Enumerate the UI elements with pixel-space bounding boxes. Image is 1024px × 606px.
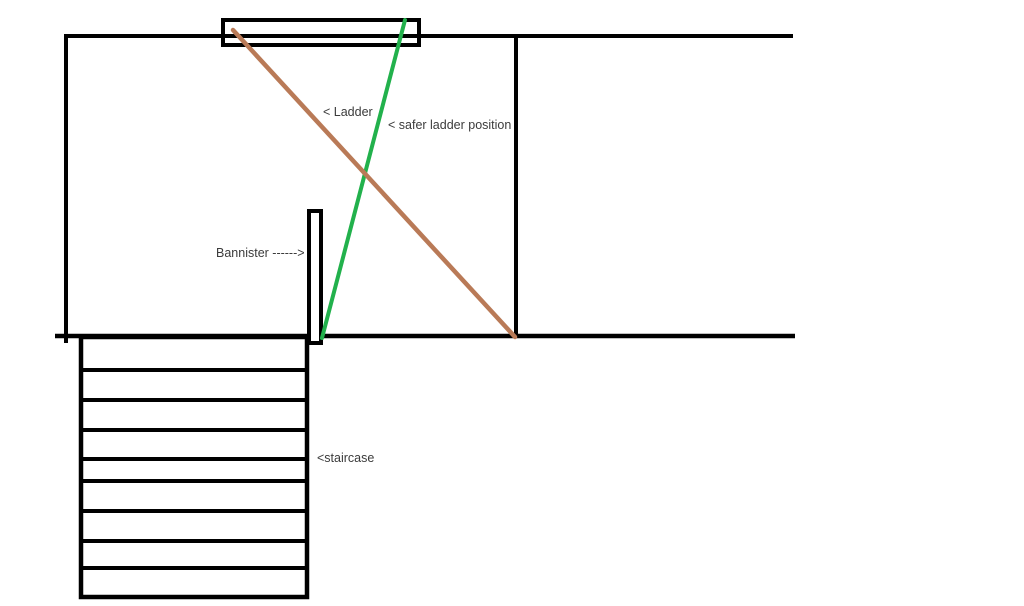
drawing-canvas: < Ladder < safer ladder position Bannist… — [0, 0, 1024, 606]
bannister-label: Bannister ------> — [216, 246, 305, 260]
loft-hatch-outline — [223, 20, 419, 45]
bannister-shape — [309, 211, 321, 343]
floorplan-diagram: < Ladder < safer ladder position Bannist… — [0, 0, 1024, 606]
safer-ladder-label: < safer ladder position — [388, 118, 511, 132]
staircase-label: <staircase — [317, 451, 374, 465]
staircase-shape — [81, 337, 307, 597]
safer-ladder-line — [322, 20, 405, 338]
ladder-line — [233, 30, 515, 337]
staircase-outline — [81, 337, 307, 597]
ladder-label: < Ladder — [323, 105, 373, 119]
